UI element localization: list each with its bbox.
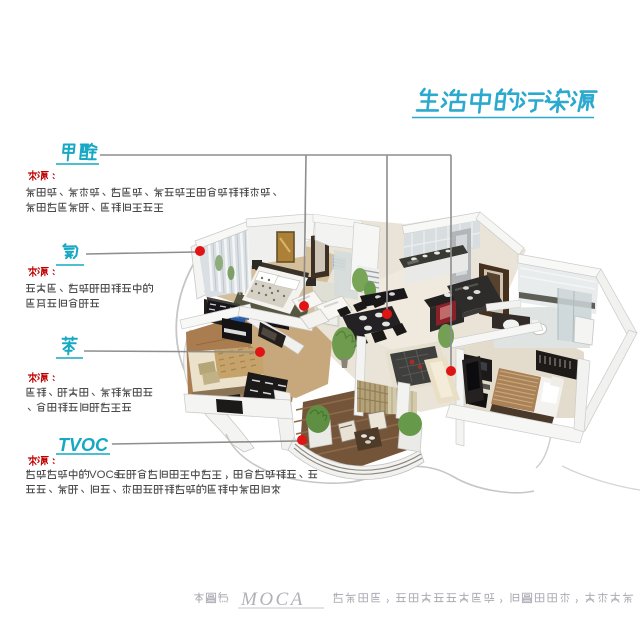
- svg-text:TVOC: TVOC: [58, 435, 109, 455]
- svg-text:VOCs: VOCs: [89, 469, 120, 481]
- svg-text:MOCA: MOCA: [240, 589, 305, 610]
